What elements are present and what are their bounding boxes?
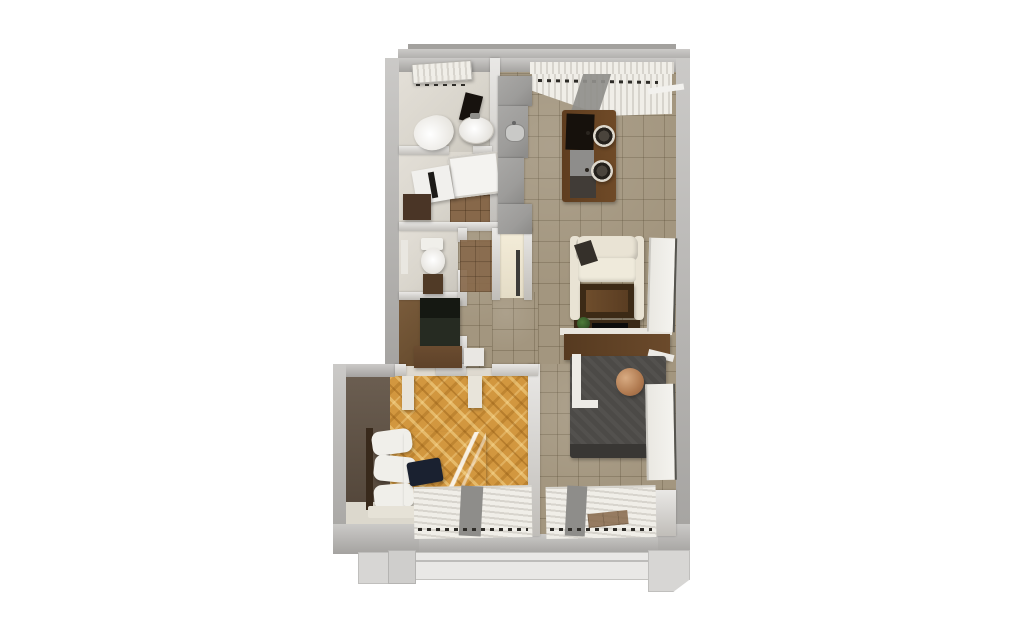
closet-storage-box	[464, 348, 484, 366]
wall-bedroom-top-a	[395, 364, 406, 376]
laundry-cabinet	[403, 194, 431, 220]
table-cup	[586, 131, 590, 135]
entry-alcove-wall-right	[524, 228, 532, 300]
bathroom-window-blinds	[411, 60, 472, 84]
shower-tray	[448, 151, 503, 199]
entry-door	[516, 250, 520, 296]
wall-right	[676, 58, 690, 554]
bedroom-door-jamb-1	[402, 376, 414, 410]
coffee-table-top	[586, 290, 628, 312]
bathroom-window-ticks	[416, 84, 466, 86]
kitchen-faucet	[512, 121, 516, 125]
copper-round-pillow	[616, 368, 644, 396]
radiator-panel-upper	[647, 238, 677, 333]
entry-alcove-wall-left	[492, 228, 500, 300]
kitchen-upper-cabinet	[498, 76, 532, 106]
bed-frame-trim-horizontal	[572, 400, 598, 408]
living-window-band	[530, 62, 674, 74]
bathroom-faucet	[470, 113, 480, 119]
wc-vanity	[423, 274, 443, 294]
kitchen-counter-2	[498, 158, 524, 204]
bedroom-bottom-window-ticks	[418, 528, 528, 531]
wc-toilet-bowl	[421, 248, 445, 274]
closet-wardrobe-top	[420, 298, 460, 318]
bottom-balcony-right-block	[648, 550, 690, 592]
wc-niche	[401, 240, 408, 274]
table-cup-2	[585, 168, 589, 172]
living-bottom-window-ticks	[550, 528, 652, 531]
bathroom-sink	[458, 116, 494, 144]
floor-plan-render	[0, 0, 1024, 624]
dark-stool	[570, 176, 596, 198]
hallway-tile-floor-2	[492, 292, 538, 372]
dining-chair-2	[591, 160, 613, 182]
radiator-panel-lower	[645, 384, 677, 481]
kitchen-sink	[505, 124, 525, 142]
hallway-door-mat	[460, 240, 492, 292]
wall-left-upper	[385, 58, 399, 372]
wall-bedroom-top-c	[492, 364, 538, 376]
laptop-on-table	[565, 114, 594, 151]
entry-alcove-floor	[500, 234, 524, 298]
bottom-balcony-post	[388, 550, 416, 584]
kitchen-counter-3	[498, 204, 532, 234]
closet-dresser	[414, 346, 462, 368]
bottom-balcony-left-block	[358, 552, 390, 584]
bedroom-door-jamb-2	[468, 376, 482, 408]
dining-chair-1	[593, 125, 615, 147]
